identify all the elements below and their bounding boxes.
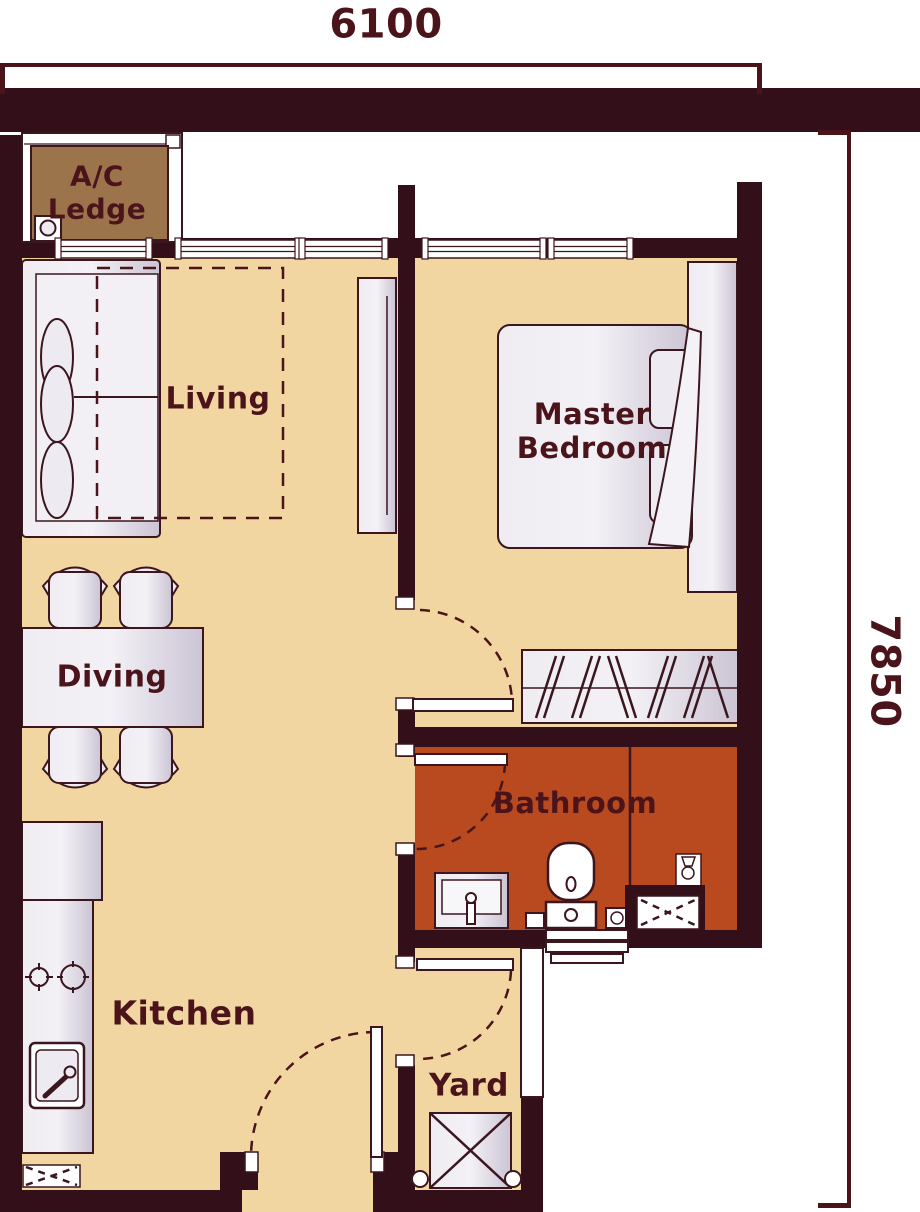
dimension-height-label: 7850 bbox=[860, 614, 907, 727]
floor-entrance bbox=[242, 1190, 373, 1212]
door-leaf bbox=[415, 754, 507, 765]
dining-chair bbox=[49, 572, 101, 628]
door-jamb bbox=[396, 956, 414, 968]
dining-chair bbox=[120, 727, 172, 783]
room-label-living: Living bbox=[165, 381, 270, 416]
door-jamb bbox=[396, 843, 414, 855]
shower-floor-trap bbox=[637, 896, 699, 929]
kitchen-sink bbox=[30, 1043, 84, 1108]
vanity-sink bbox=[435, 873, 508, 928]
wall-bathroom-top bbox=[415, 727, 737, 747]
room-label-ac-ledge-line2: Ledge bbox=[48, 192, 146, 225]
kitchen-counter bbox=[22, 900, 93, 1153]
room-label-bathroom: Bathroom bbox=[493, 786, 658, 820]
door-jamb bbox=[245, 1152, 258, 1172]
door-jamb bbox=[396, 698, 414, 710]
yard-tap bbox=[412, 1171, 428, 1187]
wall-window-stub bbox=[398, 185, 415, 258]
upper-structure-wall bbox=[0, 88, 920, 132]
kitchen-fixtures bbox=[22, 822, 102, 1153]
door-leaf bbox=[413, 699, 513, 711]
window bbox=[548, 238, 633, 259]
wall-right bbox=[737, 182, 762, 948]
door-jamb bbox=[396, 1055, 414, 1067]
door-jamb bbox=[396, 744, 414, 756]
room-label-ac-ledge-line1: A/C bbox=[70, 159, 124, 192]
floor-plan: 6100 7850 A/C Ledge Living Master Bedroo… bbox=[0, 0, 920, 1212]
room-label-kitchen: Kitchen bbox=[111, 995, 256, 1034]
window bbox=[55, 238, 152, 259]
sofa bbox=[22, 260, 160, 537]
door-leaf bbox=[417, 959, 513, 970]
wardrobe bbox=[522, 650, 740, 723]
yard-window bbox=[521, 948, 543, 1097]
fridge bbox=[22, 822, 102, 900]
dimension-width-label: 6100 bbox=[329, 1, 442, 48]
tv-console bbox=[358, 278, 396, 533]
wall-yard-right bbox=[521, 1097, 543, 1212]
window bbox=[422, 238, 546, 259]
wall-bottom bbox=[0, 1190, 242, 1212]
wall-left bbox=[0, 135, 22, 1212]
toilet bbox=[546, 843, 596, 928]
door-jamb bbox=[396, 597, 414, 609]
bathroom-bin bbox=[526, 913, 544, 928]
dining-chair bbox=[49, 727, 101, 783]
kitchen-floor-trap bbox=[23, 1165, 80, 1187]
room-label-master-bedroom: Master Bedroom bbox=[517, 397, 667, 465]
dimension-height-line bbox=[818, 130, 851, 1208]
windows bbox=[55, 238, 633, 259]
towel-rail bbox=[546, 930, 628, 963]
room-label-yard: Yard bbox=[429, 1068, 509, 1105]
window bbox=[175, 238, 301, 259]
window bbox=[299, 238, 388, 259]
yard-drain bbox=[505, 1171, 521, 1187]
door-leaf bbox=[371, 1027, 382, 1157]
dining-chair bbox=[120, 572, 172, 628]
room-label-dining: Diving bbox=[57, 659, 168, 694]
washing-machine bbox=[430, 1113, 511, 1188]
toilet-roll-holder bbox=[606, 908, 628, 928]
shower-mixer bbox=[676, 854, 701, 886]
